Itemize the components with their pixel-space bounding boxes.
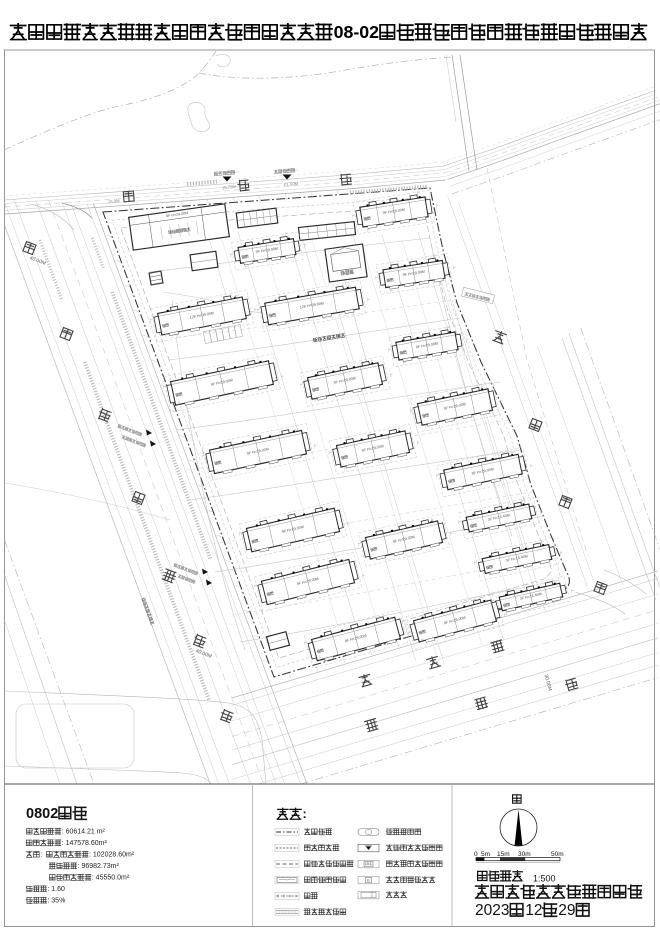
svg-text:: 35%: : 35% [47, 898, 65, 905]
svg-text:5m: 5m [481, 851, 490, 858]
svg-text:: 96982.73m²: : 96982.73m² [78, 863, 120, 870]
svg-text:29: 29 [558, 902, 575, 919]
svg-text::: : [40, 852, 42, 859]
svg-text:0: 0 [474, 851, 478, 858]
svg-text:: 60614.21 m²: : 60614.21 m² [62, 829, 106, 836]
svg-text:50m: 50m [551, 851, 564, 858]
svg-text:: 102028.60m²: : 102028.60m² [89, 852, 135, 859]
svg-text:12: 12 [525, 902, 542, 919]
svg-text:: 147578.60m²: : 147578.60m² [62, 840, 108, 847]
svg-text:0802: 0802 [26, 806, 58, 822]
svg-text:: 1.60: : 1.60 [47, 886, 65, 893]
svg-text:30m: 30m [518, 851, 531, 858]
svg-text:2023: 2023 [475, 902, 509, 919]
svg-text:: 45550.0m²: : 45550.0m² [92, 875, 130, 882]
svg-text::: : [303, 807, 307, 821]
svg-text:15m: 15m [497, 851, 510, 858]
svg-text:08-02: 08-02 [334, 22, 380, 42]
svg-text:10.1: 10.1 [365, 862, 372, 866]
svg-text:1:500: 1:500 [533, 874, 556, 884]
svg-text:G: G [367, 878, 370, 882]
